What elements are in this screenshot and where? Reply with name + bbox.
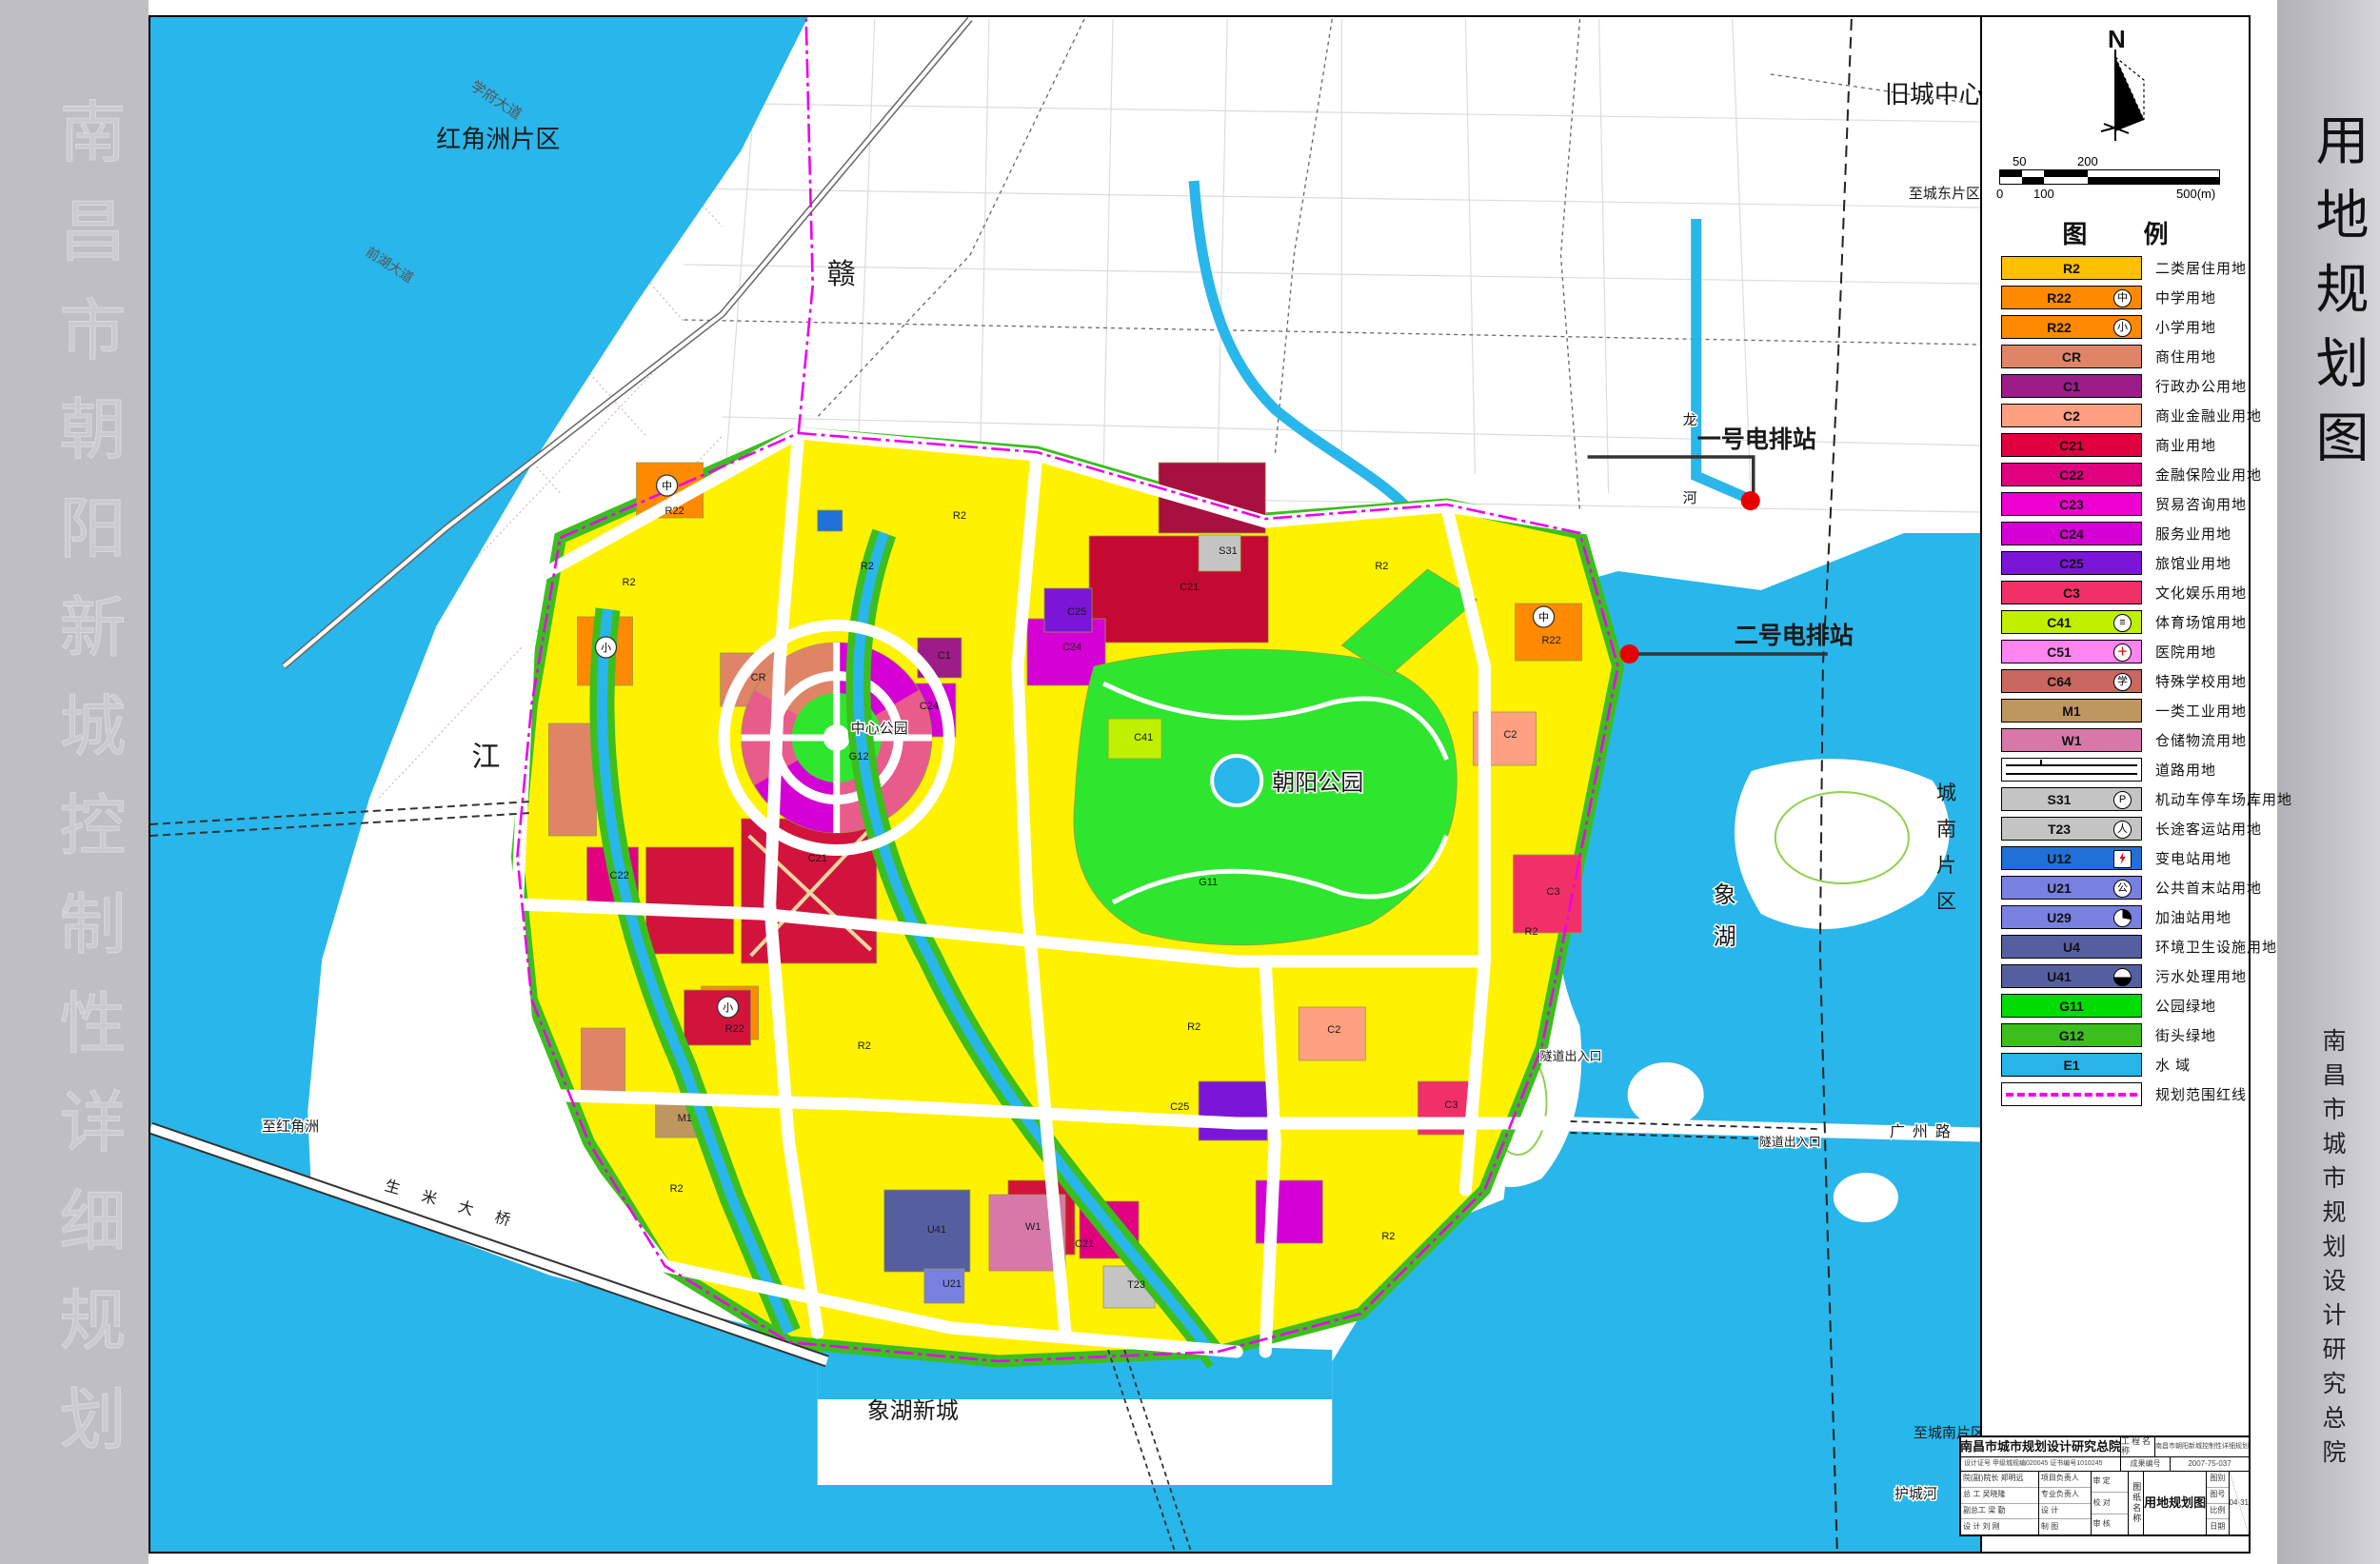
map-label: 一号电排站 (1697, 426, 1816, 453)
meta-tubie: 图别 (2207, 1472, 2228, 1488)
title-block: 南昌市城市规划设计研究总院 工程名称 南昌市朝阳新城控制性详细规划 设计证号 甲… (1959, 1435, 2251, 1536)
legend-row: C64学特殊学校用地 (2001, 666, 2239, 696)
sig-a1: 院(副)院长 郑明远 (1961, 1472, 2038, 1488)
legend-label: 环境卫生设施用地 (2155, 937, 2277, 957)
legend-row: R22小小学用地 (2001, 312, 2239, 342)
legend-label: 水 域 (2155, 1055, 2191, 1075)
map-label: 中心公园 (851, 721, 908, 737)
legend-code: C64 (2047, 674, 2072, 689)
parcel-code: R22 (665, 505, 684, 517)
legend-icon (2113, 909, 2132, 927)
legend-icon: 小 (2113, 319, 2132, 337)
meta-bili: 比例 (2207, 1504, 2228, 1520)
legend-swatch (2001, 758, 2142, 782)
legend-swatch: CR (2001, 345, 2142, 368)
legend-label: 加油站用地 (2155, 907, 2231, 927)
north-label: N (2108, 25, 2126, 54)
parcel-code: R2 (1525, 926, 1538, 938)
legend-code: C3 (2063, 585, 2080, 601)
parcel-code: G11 (1199, 877, 1218, 888)
parcel-code: U41 (927, 1224, 946, 1236)
legend-swatch: C21 (2001, 433, 2142, 457)
planning-map: R2R2R2R2R2R2R2R2R2R22R22R22C21C21C21C2C2… (150, 17, 1980, 1552)
legend-label: 医院用地 (2155, 642, 2216, 662)
legend-code: W1 (2062, 733, 2082, 748)
legend-label: 行政办公用地 (2155, 376, 2247, 396)
parcel-code: C22 (610, 870, 629, 881)
sig-b3: 设 计 (2039, 1504, 2091, 1520)
signature-col-b: 项目负责人 专业负责人 设 计 制 图 (2039, 1472, 2092, 1534)
legend-swatch: C1 (2001, 374, 2142, 398)
cert-no: 设计证号 甲级城规编020045 证书编号1010245 (1961, 1457, 2121, 1471)
legend-row: CR商住用地 (2001, 342, 2239, 371)
meta-riqi: 日期 (2207, 1519, 2228, 1534)
map-label: 至城东片区 (1909, 186, 1980, 202)
parcel-code: W1 (1025, 1221, 1041, 1233)
legend-row: C24服务业用地 (2001, 519, 2239, 548)
parcel-code: G12 (849, 751, 869, 762)
parcel-code: C21 (1180, 582, 1199, 593)
legend-swatch: C64学 (2001, 669, 2142, 693)
legend-icon: 学 (2113, 673, 2132, 691)
legend-swatch: U41 (2001, 964, 2142, 988)
legend-swatch: R22小 (2001, 315, 2142, 339)
legend-rows: R2二类居住用地R22中中学用地R22小小学用地CR商住用地C1行政办公用地C2… (2001, 253, 2239, 1109)
legend-code: C51 (2047, 644, 2072, 660)
map-label: 象湖新城 (867, 1398, 959, 1424)
parcel-code: C21 (808, 853, 827, 864)
parcel-code: R2 (670, 1183, 684, 1195)
scale-bar: 50 200 0 100 500(m) (1999, 158, 2220, 202)
parcel-code: S31 (1219, 545, 1238, 557)
legend-swatch (2001, 1082, 2142, 1106)
legend-icon (2113, 968, 2132, 986)
legend-code: C1 (2063, 379, 2080, 394)
scale-200: 200 (2077, 154, 2098, 168)
legend-row: C3文化娱乐用地 (2001, 578, 2239, 607)
project-label: 工程名称 (2121, 1437, 2155, 1456)
legend-label: 污水处理用地 (2155, 966, 2247, 986)
school-icon-glyph: 中 (662, 480, 672, 492)
legend-label: 街头绿地 (2155, 1025, 2216, 1045)
legend-label: 机动车停车场库用地 (2155, 789, 2292, 809)
map-label: 江 (471, 742, 500, 773)
right-margin-panel: 用地规划图 南昌市城市规划设计研究总院 (2277, 0, 2380, 1564)
legend-icon: P (2113, 791, 2132, 809)
map-label: 朝阳公园 (1272, 770, 1363, 796)
legend-swatch: C41≡ (2001, 610, 2142, 634)
legend-code: U12 (2047, 851, 2072, 866)
result-no: 2007-75-037 (2171, 1457, 2249, 1471)
legend-label: 服务业用地 (2155, 524, 2231, 544)
parcel-code: R22 (1542, 635, 1561, 646)
map-label: 至红角洲 (262, 1119, 319, 1135)
parcel-code: R22 (725, 1023, 744, 1035)
parcel-code: R2 (953, 510, 966, 522)
parcel-code: C25 (1067, 606, 1086, 618)
legend-label: 商业金融业用地 (2155, 406, 2262, 426)
legend-icon: ≡ (2113, 614, 2132, 632)
legend-code: C25 (2059, 556, 2084, 571)
legend-code: C2 (2063, 408, 2080, 424)
legend-code: T23 (2048, 822, 2071, 837)
map-label: 赣 (827, 259, 856, 290)
legend-swatch: M1 (2001, 699, 2142, 723)
legend-code: U41 (2047, 969, 2072, 984)
legend-swatch: C2 (2001, 404, 2142, 427)
sig-a3: 副总工 梁 勤 (1961, 1504, 2038, 1520)
legend-label: 道路用地 (2155, 760, 2216, 780)
legend-swatch: U21公 (2001, 876, 2142, 900)
sig-a4: 设 计 刘 刚 (1961, 1519, 2038, 1534)
parcel-code: C3 (1547, 886, 1560, 898)
map-label: 隧道出入口 (1540, 1049, 1602, 1063)
sig-a2: 总 工 吴晓隆 (1961, 1488, 2038, 1504)
legend-swatch: C24 (2001, 522, 2142, 545)
legend-label: 公园绿地 (2155, 996, 2216, 1016)
scale-0: 0 (1996, 187, 2003, 201)
legend-row: W1仓储物流用地 (2001, 725, 2239, 755)
legend-code: E1 (2063, 1058, 2079, 1073)
legend-row: R2二类居住用地 (2001, 253, 2239, 283)
sig-b1: 项目负责人 (2039, 1472, 2091, 1488)
sig-c2: 校 对 (2092, 1493, 2128, 1514)
legend-swatch: C51＋ (2001, 640, 2142, 663)
legend-row: M1一类工业用地 (2001, 696, 2239, 725)
legend-label: 小学用地 (2155, 317, 2216, 337)
plan-title-vertical: 南昌市朝阳新城控制性详细规划 (40, 97, 136, 1483)
legend-code: R2 (2063, 261, 2080, 276)
legend-row: U12变电站用地 (2001, 843, 2239, 873)
legend-label: 中学用地 (2155, 287, 2216, 307)
legend-code: S31 (2048, 792, 2072, 807)
legend-code: U21 (2047, 881, 2072, 896)
legend-icon: 人 (2113, 821, 2132, 839)
map-label: 隧道出入口 (1759, 1135, 1821, 1149)
legend-label: 商住用地 (2155, 346, 2216, 366)
parcel-code: C24 (920, 701, 939, 712)
legend-title: 图 例 (1982, 215, 2249, 250)
map-label: 二号电排站 (1735, 623, 1854, 649)
legend-code: C21 (2059, 438, 2084, 453)
result-label: 成果编号 (2121, 1457, 2171, 1471)
sig-b2: 专业负责人 (2039, 1488, 2091, 1504)
legend-code: C22 (2059, 467, 2084, 483)
map-label: 护城河 (1894, 1486, 1937, 1502)
legend-label: 长途客运站用地 (2155, 819, 2262, 839)
parcel-code: R2 (623, 577, 636, 588)
legend-row: U4环境卫生设施用地 (2001, 932, 2239, 961)
legend-row: C25旅馆业用地 (2001, 548, 2239, 578)
legend-swatch: U4 (2001, 935, 2142, 959)
scale-500: 500(m) (2176, 187, 2215, 201)
meta-labels: 图别 图号 比例 日期 (2207, 1472, 2229, 1534)
legend-swatch: G12 (2001, 1023, 2142, 1047)
parcel-code: CR (751, 672, 766, 683)
parcel-code: R2 (1187, 1021, 1200, 1033)
legend-code: U4 (2063, 940, 2080, 955)
parcel-code: C25 (1170, 1101, 1189, 1113)
legend-swatch: T23人 (2001, 817, 2142, 841)
legend-row: T23人长途客运站用地 (2001, 814, 2239, 843)
legend-swatch: S31P (2001, 787, 2142, 811)
legend-icon: 公 (2113, 880, 2132, 898)
legend-label: 体育场馆用地 (2155, 612, 2247, 632)
legend-swatch: U12 (2001, 846, 2142, 870)
legend-swatch: C22 (2001, 463, 2142, 486)
meta-tuhao: 图号 (2207, 1488, 2228, 1504)
legend-code: G12 (2059, 1028, 2084, 1043)
meta-value: 04·31 (2230, 1472, 2249, 1534)
map-label: 广州路 (1890, 1123, 1958, 1140)
map-label: 旧城中心区 (1885, 80, 1980, 109)
legend-label: 一类工业用地 (2155, 701, 2247, 721)
scale-50: 50 (2013, 154, 2026, 168)
signature-col-c: 审 定 校 对 审 核 (2092, 1472, 2129, 1534)
parcel-code: C2 (1503, 729, 1517, 741)
parcel-code: R2 (1381, 1231, 1395, 1242)
scale-100: 100 (2033, 187, 2054, 201)
legend-label: 文化娱乐用地 (2155, 583, 2247, 603)
legend-swatch: R2 (2001, 256, 2142, 280)
parcel-code: C1 (938, 650, 951, 662)
legend-row: U41污水处理用地 (2001, 961, 2239, 991)
legend-icon: ＋ (2113, 643, 2132, 662)
legend-row: G12街头绿地 (2001, 1020, 2239, 1050)
sig-c1: 审 定 (2092, 1472, 2128, 1493)
map-label: 红角洲片区 (436, 125, 560, 153)
legend-code: CR (2062, 349, 2081, 365)
legend-row: U29加油站用地 (2001, 902, 2239, 932)
parcel-code: C41 (1134, 732, 1153, 743)
legend-row: E1水 域 (2001, 1050, 2239, 1079)
legend-swatch: U29 (2001, 905, 2142, 929)
institute-name: 南昌市城市规划设计研究总院 (1961, 1437, 2121, 1456)
legend-swatch: C23 (2001, 492, 2142, 516)
legend-label: 特殊学校用地 (2155, 671, 2247, 691)
legend-label: 金融保险业用地 (2155, 465, 2262, 485)
legend-row: C1行政办公用地 (2001, 371, 2239, 401)
north-arrow: N (2049, 25, 2182, 147)
legend-row: C23贸易咨询用地 (2001, 489, 2239, 519)
legend-code: U29 (2047, 910, 2072, 925)
sheet-name-label: 图纸名称 (2129, 1472, 2145, 1534)
sheet-title-vertical: 用地规划图 (2300, 112, 2377, 484)
legend-code: C23 (2059, 497, 2084, 512)
school-icon-glyph: 小 (723, 1001, 733, 1014)
legend-icon: 中 (2113, 289, 2132, 307)
institute-vertical: 南昌市城市规划设计研究总院 (2315, 1028, 2350, 1474)
legend-label: 商业用地 (2155, 435, 2216, 455)
parcel-code: R2 (858, 1040, 871, 1052)
parcel-code: C3 (1444, 1099, 1458, 1111)
legend-label: 二类居住用地 (2155, 258, 2247, 278)
legend-swatch: C3 (2001, 581, 2142, 604)
signature-col-a: 院(副)院长 郑明远 总 工 吴晓隆 副总工 梁 勤 设 计 刘 刚 (1961, 1472, 2039, 1534)
legend-code: R22 (2047, 320, 2072, 335)
legend-row: C21商业用地 (2001, 430, 2239, 460)
left-margin-panel: 南昌市朝阳新城控制性详细规划 (0, 0, 149, 1564)
legend-code: C41 (2047, 615, 2072, 630)
parcel-code: T23 (1127, 1279, 1145, 1291)
sheet-name: 用地规划图 (2144, 1472, 2207, 1534)
legend-icon (2113, 850, 2132, 868)
legend-row: C2商业金融业用地 (2001, 401, 2239, 430)
sig-b4: 制 图 (2039, 1519, 2091, 1534)
legend-label: 旅馆业用地 (2155, 553, 2231, 573)
legend-code: R22 (2047, 290, 2072, 306)
legend-label: 贸易咨询用地 (2155, 494, 2247, 514)
legend-row: G11公园绿地 (2001, 991, 2239, 1020)
legend-swatch: G11 (2001, 994, 2142, 1018)
parcel-code: R2 (861, 561, 874, 572)
legend-row: 道路用地 (2001, 755, 2239, 784)
school-icon-glyph: 中 (1538, 611, 1549, 624)
legend-row: U21公公共首末站用地 (2001, 873, 2239, 902)
parcel-code: M1 (678, 1113, 692, 1124)
sig-c3: 审 核 (2092, 1515, 2128, 1534)
project-name: 南昌市朝阳新城控制性详细规划 (2155, 1437, 2249, 1456)
legend-swatch: R22中 (2001, 286, 2142, 309)
legend-label: 规划范围红线 (2155, 1084, 2247, 1104)
parcel-code: U21 (942, 1278, 962, 1290)
map-frame: R2R2R2R2R2R2R2R2R2R22R22R22C21C21C21C2C2… (149, 15, 2251, 1554)
parcel-code: C21 (1075, 1238, 1094, 1250)
legend-swatch: W1 (2001, 728, 2142, 752)
legend-label: 变电站用地 (2155, 848, 2231, 868)
parcel-code: C24 (1062, 642, 1081, 653)
legend-code: M1 (2062, 703, 2080, 719)
legend-swatch: C25 (2001, 551, 2142, 575)
legend-label: 公共首末站用地 (2155, 878, 2262, 898)
legend-row: C51＋医院用地 (2001, 637, 2239, 666)
legend-row: C22金融保险业用地 (2001, 460, 2239, 489)
legend-label: 仓储物流用地 (2155, 730, 2247, 750)
legend-code: G11 (2059, 999, 2084, 1014)
legend-swatch: E1 (2001, 1053, 2142, 1077)
legend-row: C41≡体育场馆用地 (2001, 607, 2239, 637)
school-icon-glyph: 小 (601, 642, 611, 654)
legend-row: 规划范围红线 (2001, 1079, 2239, 1109)
legend-row: R22中中学用地 (2001, 283, 2239, 312)
parcel-code: R2 (1375, 561, 1388, 572)
parcel-code: C2 (1327, 1024, 1340, 1036)
legend-panel: N 50 200 0 100 (1980, 17, 2249, 1552)
legend-code: C24 (2059, 526, 2084, 542)
legend-row: S31P机动车停车场库用地 (2001, 784, 2239, 814)
